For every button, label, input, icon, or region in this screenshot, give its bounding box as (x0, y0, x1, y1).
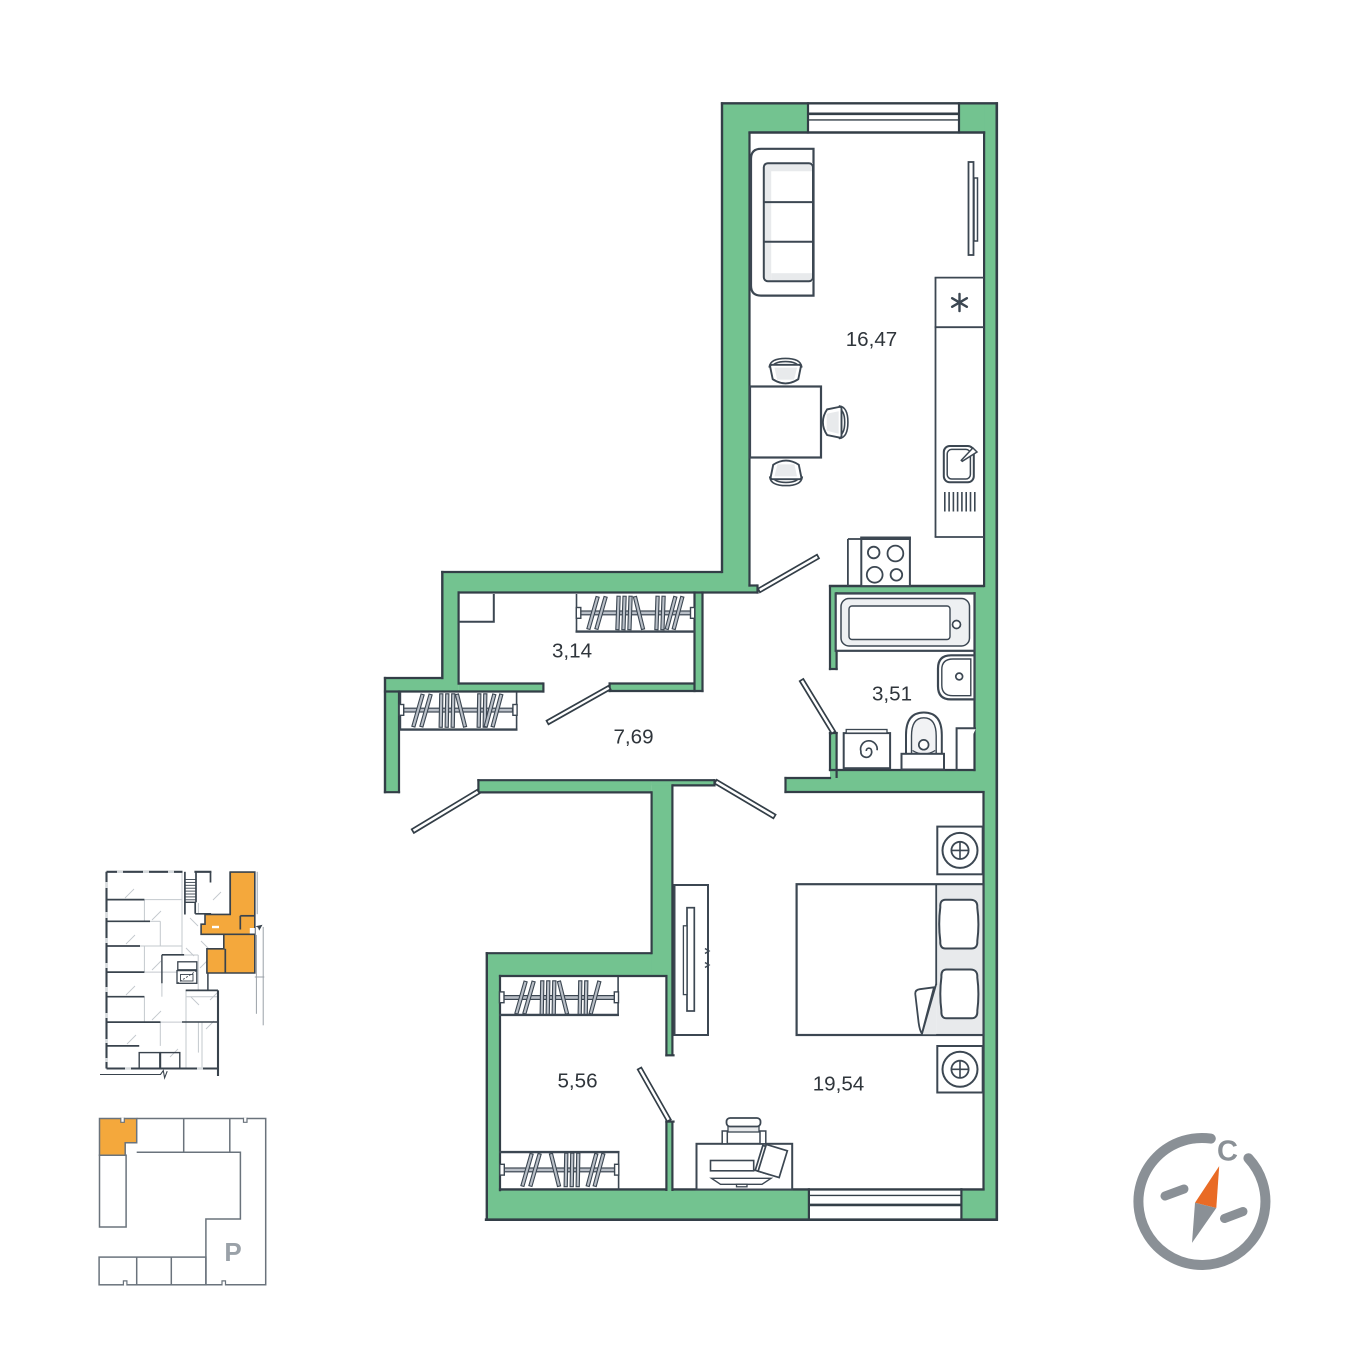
svg-text:7,69: 7,69 (613, 726, 653, 749)
svg-text:19,54: 19,54 (813, 1073, 865, 1096)
svg-text:16,47: 16,47 (846, 328, 898, 351)
svg-text:3,51: 3,51 (872, 683, 912, 706)
svg-text:5,56: 5,56 (557, 1070, 597, 1093)
svg-text:3,14: 3,14 (552, 640, 592, 663)
svg-text:C: C (1217, 1136, 1238, 1168)
svg-text:P: P (224, 1237, 241, 1267)
